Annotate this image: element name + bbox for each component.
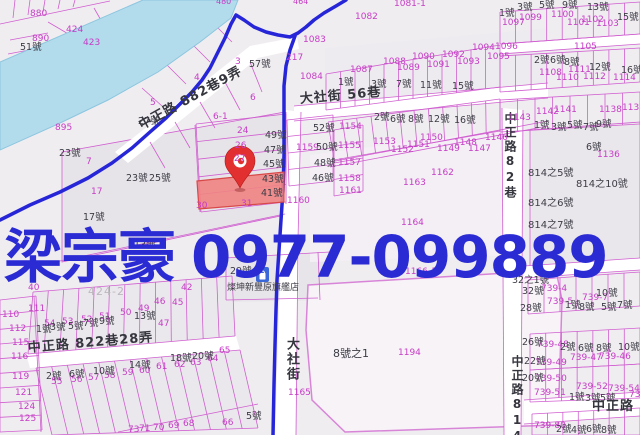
parcel-label: 2號 xyxy=(46,372,62,382)
parcel-label: 480 xyxy=(216,0,231,6)
parcel-label: 24 xyxy=(237,127,248,136)
street-label: 中正路814巷 xyxy=(511,355,523,435)
parcel-label: 50號 xyxy=(316,143,338,153)
parcel-label: 3號 xyxy=(50,323,66,333)
parcel-label: 1194 xyxy=(398,349,421,358)
parcel-label: 739-47 xyxy=(570,354,602,363)
parcel-label: 1081-1 xyxy=(394,0,426,9)
parcel-label: 1160 xyxy=(287,197,310,206)
parcel-label: 57號 xyxy=(249,60,271,70)
parcel-label: 423 xyxy=(83,39,100,48)
parcel-label: 45 xyxy=(172,299,183,308)
parcel-label: 16號 xyxy=(454,116,476,126)
parcel-label: 8號之1 xyxy=(333,348,369,359)
parcel-label: 6號 xyxy=(586,143,602,153)
parcel-label: 1155 xyxy=(338,142,361,151)
parcel-label: 1146 xyxy=(485,134,508,143)
parcel-label: 70 xyxy=(153,424,164,433)
parcel-label: 1號 xyxy=(569,393,585,403)
parcel-label: 8號 xyxy=(579,303,595,313)
parcel-label: 7 xyxy=(86,158,92,167)
parcel-label: 1110 xyxy=(556,74,579,83)
parcel-label: 739-55 xyxy=(629,391,640,400)
cadastral-map: 中正路 882巷9弄大社街 56巷中正路 822巷28弄大社街中正路82巷中正路… xyxy=(0,0,640,435)
parcel-label: 1083 xyxy=(303,36,326,45)
parcel-label: 50 xyxy=(120,309,131,318)
parcel-label: 7號 xyxy=(617,301,633,311)
parcel-label: 1號 xyxy=(499,9,515,19)
parcel-label: 1號 xyxy=(338,78,354,88)
parcel-label: 12號 xyxy=(428,115,450,125)
agent-name: 梁宗豪 xyxy=(4,223,175,291)
parcel-label: 7號 xyxy=(396,80,412,90)
parcel-label: 71 xyxy=(139,425,150,434)
parcel-label: 61 xyxy=(156,363,167,372)
parcel-label: 9號 xyxy=(562,1,578,11)
parcel-label: 1103 xyxy=(596,20,619,29)
parcel-label: 5號 xyxy=(539,1,555,11)
parcel-label: 51號 xyxy=(20,43,42,53)
parcel-label: 22號 xyxy=(524,357,546,367)
parcel-label: 814之6號 xyxy=(528,199,573,209)
parcel-label: 48號 xyxy=(314,159,336,169)
parcel-label: 1154 xyxy=(339,123,362,132)
parcel-label: 20號 xyxy=(522,374,544,384)
parcel-label: 10號 xyxy=(618,343,640,353)
parcel-label: 1082 xyxy=(355,13,378,22)
parcel-label: 5號 xyxy=(600,394,616,404)
parcel-label: 68 xyxy=(183,420,194,429)
parcel-label: 1162 xyxy=(431,169,454,178)
parcel-label: 739-51 xyxy=(534,389,566,398)
street-label: 大社街 56巷 xyxy=(299,86,381,106)
parcel-label: 17 xyxy=(91,188,102,197)
parcel-label: 66 xyxy=(222,419,233,428)
parcel-label: 5號 xyxy=(68,322,84,332)
parcel-label: 424 xyxy=(66,26,83,35)
parcel-label: 43號 xyxy=(262,175,284,185)
parcel-label: 45號 xyxy=(263,160,285,170)
parcel-label: 1089 xyxy=(397,64,420,73)
parcel-label: 1號 xyxy=(534,121,550,131)
parcel-label: 814之10號 xyxy=(576,180,628,190)
parcel-label: 110 xyxy=(2,311,19,320)
parcel-label: 112 xyxy=(9,325,26,334)
parcel-label: 1161 xyxy=(339,187,362,196)
parcel-label: 1143 xyxy=(508,114,531,123)
parcel-label: 28號 xyxy=(520,304,542,314)
parcel-label: 116 xyxy=(11,353,28,362)
parcel-label: 3號 xyxy=(585,394,601,404)
parcel-label: 464 xyxy=(293,0,308,6)
parcel-label: 31 xyxy=(241,200,252,209)
parcel-label: 14號 xyxy=(129,361,151,371)
parcel-label: 1095 xyxy=(487,53,510,62)
parcel-label: 47 xyxy=(158,320,169,329)
parcel-label: 2號 xyxy=(556,425,572,435)
parcel-label: 8號 xyxy=(596,344,612,354)
parcel-label: 1150 xyxy=(420,134,443,143)
parcel-label: 3號 xyxy=(551,123,567,133)
parcel-label: 111 xyxy=(28,305,45,314)
parcel-label: 739-52 xyxy=(576,383,608,392)
agent-watermark: 梁宗豪0977-099889 xyxy=(4,210,608,294)
parcel-label: 739-46 xyxy=(599,353,631,362)
parcel-label: 52號 xyxy=(313,124,335,134)
parcel-label: 25號 xyxy=(149,174,171,184)
parcel-label: 1158 xyxy=(338,175,361,184)
parcel-label: 5號 xyxy=(246,412,262,422)
parcel-label: 814之5號 xyxy=(528,169,573,179)
parcel-label: 27號 xyxy=(138,117,160,127)
parcel-label: 1163 xyxy=(403,179,426,188)
parcel-label: 5號 xyxy=(567,121,583,131)
parcel-label: 6-1 xyxy=(213,113,228,122)
parcel-label: 124 xyxy=(18,403,35,412)
parcel-label: 1165 xyxy=(288,389,311,398)
parcel-label: 4 xyxy=(194,74,200,83)
parcel-label: 46號 xyxy=(312,174,334,184)
parcel-label: 12號 xyxy=(589,63,611,73)
parcel-label: 1084 xyxy=(300,73,323,82)
parcel-label: 9號 xyxy=(99,317,115,327)
parcel-label: 1112 xyxy=(583,73,606,82)
parcel-label: 69 xyxy=(168,422,179,431)
parcel-label: 3 xyxy=(235,58,241,67)
parcel-label: 1096 xyxy=(495,43,518,52)
parcel-label: 13號 xyxy=(587,3,609,13)
parcel-label: 20號 xyxy=(192,352,214,362)
parcel-label: 9號 xyxy=(596,120,612,130)
parcel-label: 23號 xyxy=(126,174,148,184)
parcel-label: 1137 xyxy=(622,104,640,113)
parcel-label: 1138 xyxy=(599,106,622,115)
parcel-label: 119 xyxy=(12,373,29,382)
parcel-label: 46 xyxy=(154,298,165,307)
parcel-label: 3號 xyxy=(517,3,533,13)
parcel-label: 880 xyxy=(30,10,47,19)
parcel-label: 7號 xyxy=(83,319,99,329)
parcel-label: 13號 xyxy=(134,312,156,322)
parcel-label: 6號 xyxy=(578,344,594,354)
parcel-label: 1099 xyxy=(519,14,542,23)
parcel-label: 2號 xyxy=(534,56,550,66)
parcel-label: 121 xyxy=(15,389,32,398)
parcel-label: 26號 xyxy=(522,338,544,348)
parcel-label: 4號 xyxy=(571,426,587,435)
parcel-label: 1087 xyxy=(350,66,373,75)
parcel-label: 8號 xyxy=(601,426,617,435)
parcel-label: 1147 xyxy=(468,145,491,154)
parcel-label: 2號 xyxy=(560,343,576,353)
parcel-label: 8號 xyxy=(564,58,580,68)
parcel-label: 5號 xyxy=(601,303,617,313)
parcel-label: 895 xyxy=(55,124,72,133)
parcel-label: 10號 xyxy=(93,367,115,377)
parcel-label: 125 xyxy=(19,415,36,424)
parcel-label: 18號 xyxy=(170,354,192,364)
parcel-label: 49號 xyxy=(265,131,287,141)
parcel-label: 23號 xyxy=(59,149,81,159)
street-label: 中正路82巷 xyxy=(504,112,516,200)
parcel-label: 1157 xyxy=(338,159,361,168)
parcel-label: 27 xyxy=(234,155,245,164)
parcel-label: 2號 xyxy=(374,113,390,123)
parcel-label: 11號 xyxy=(420,81,442,91)
parcel-label: 8號 xyxy=(408,115,424,125)
parcel-label: 47號 xyxy=(264,146,286,156)
parcel-label: 73 xyxy=(128,426,139,435)
parcel-label: 1142 xyxy=(536,108,559,117)
parcel-label: 6號 xyxy=(69,370,85,380)
agent-phone: 0977-099889 xyxy=(191,223,608,291)
parcel-label: 115 xyxy=(12,339,29,348)
parcel-label: 217 xyxy=(286,54,303,63)
parcel-label: 26 xyxy=(235,142,246,151)
parcel-label: 65 xyxy=(219,347,230,356)
parcel-label: 6號 xyxy=(390,115,406,125)
parcel-label: 16號 xyxy=(621,66,640,76)
parcel-label: 1105 xyxy=(574,43,597,52)
parcel-label: 6 xyxy=(250,94,256,103)
parcel-label: 15號 xyxy=(452,82,474,92)
parcel-label: 6號 xyxy=(586,425,602,435)
parcel-label: 5 xyxy=(150,99,156,108)
street-label: 大社街 xyxy=(285,337,298,382)
parcel-label: 3號 xyxy=(371,80,387,90)
parcel-label: 1091 xyxy=(427,61,450,70)
parcel-label: 41號 xyxy=(261,189,283,199)
parcel-label: 1093 xyxy=(457,58,480,67)
parcel-label: 15號 xyxy=(617,13,639,23)
